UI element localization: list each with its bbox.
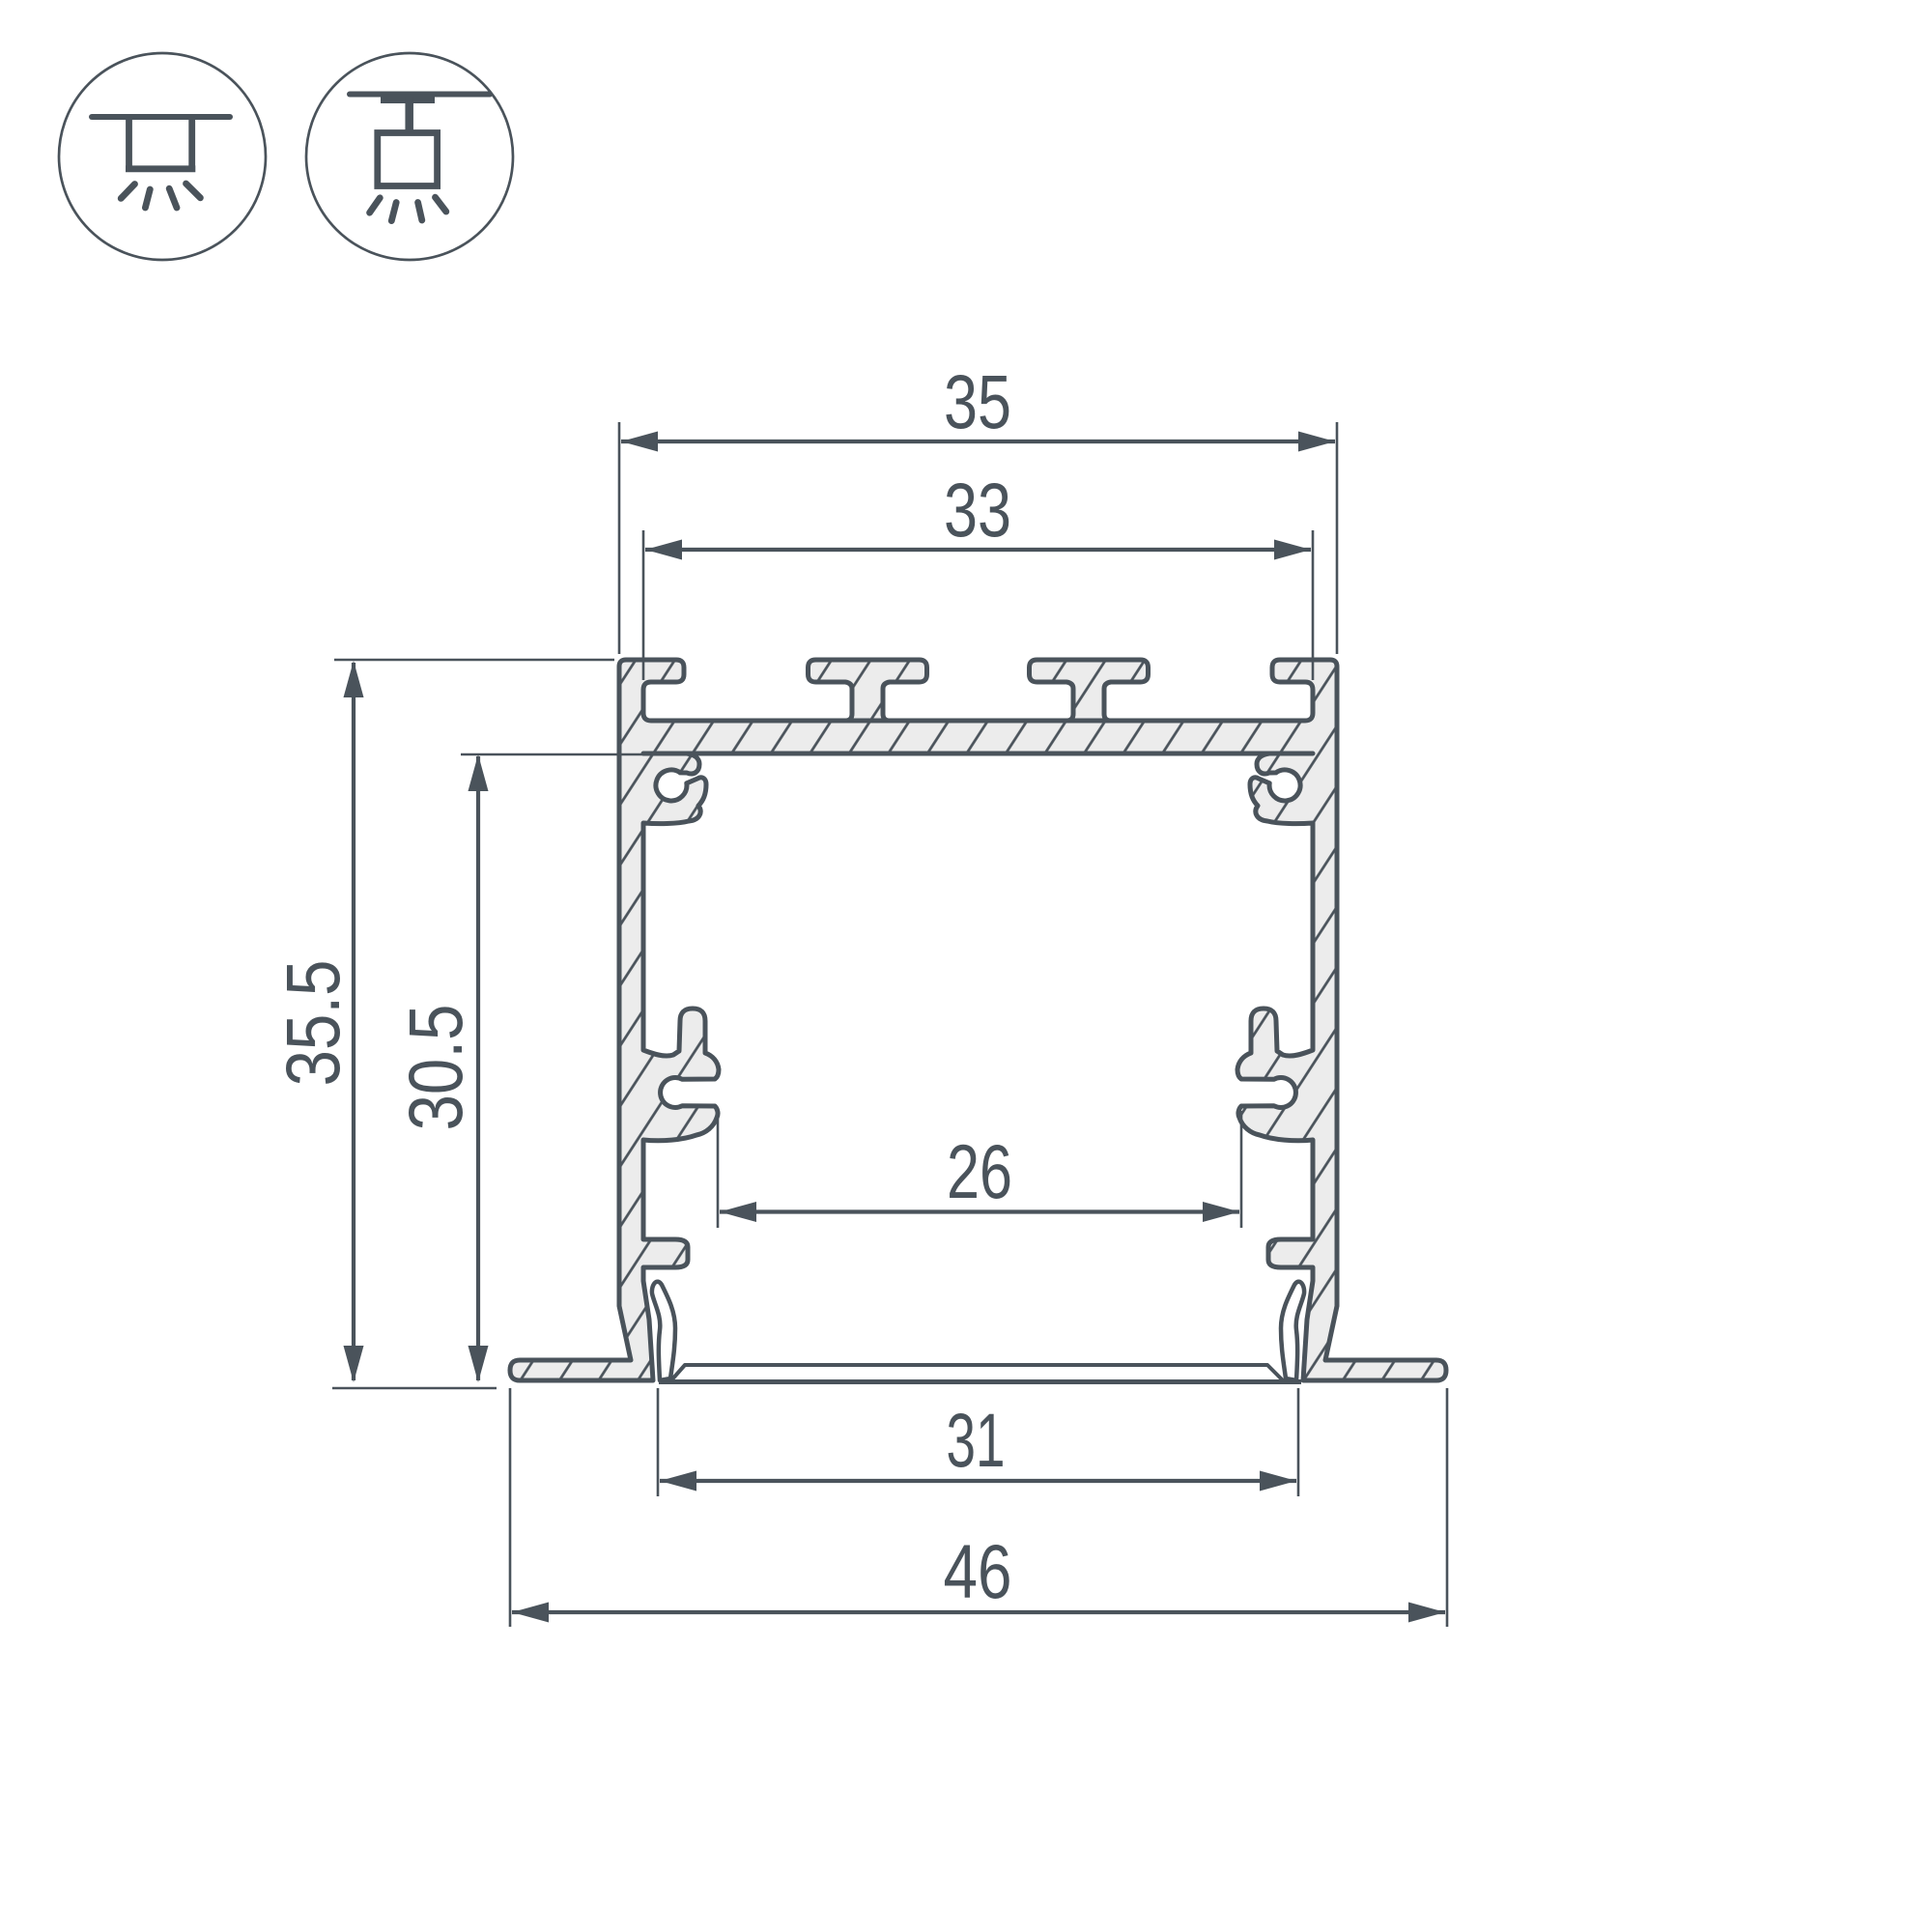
svg-text:26: 26 (947, 1128, 1012, 1214)
svg-text:30.5: 30.5 (392, 1005, 478, 1131)
svg-text:35.5: 35.5 (270, 960, 355, 1087)
svg-text:35: 35 (944, 358, 1011, 444)
svg-text:31: 31 (947, 1397, 1006, 1483)
svg-text:46: 46 (944, 1528, 1012, 1614)
svg-text:33: 33 (944, 467, 1011, 553)
